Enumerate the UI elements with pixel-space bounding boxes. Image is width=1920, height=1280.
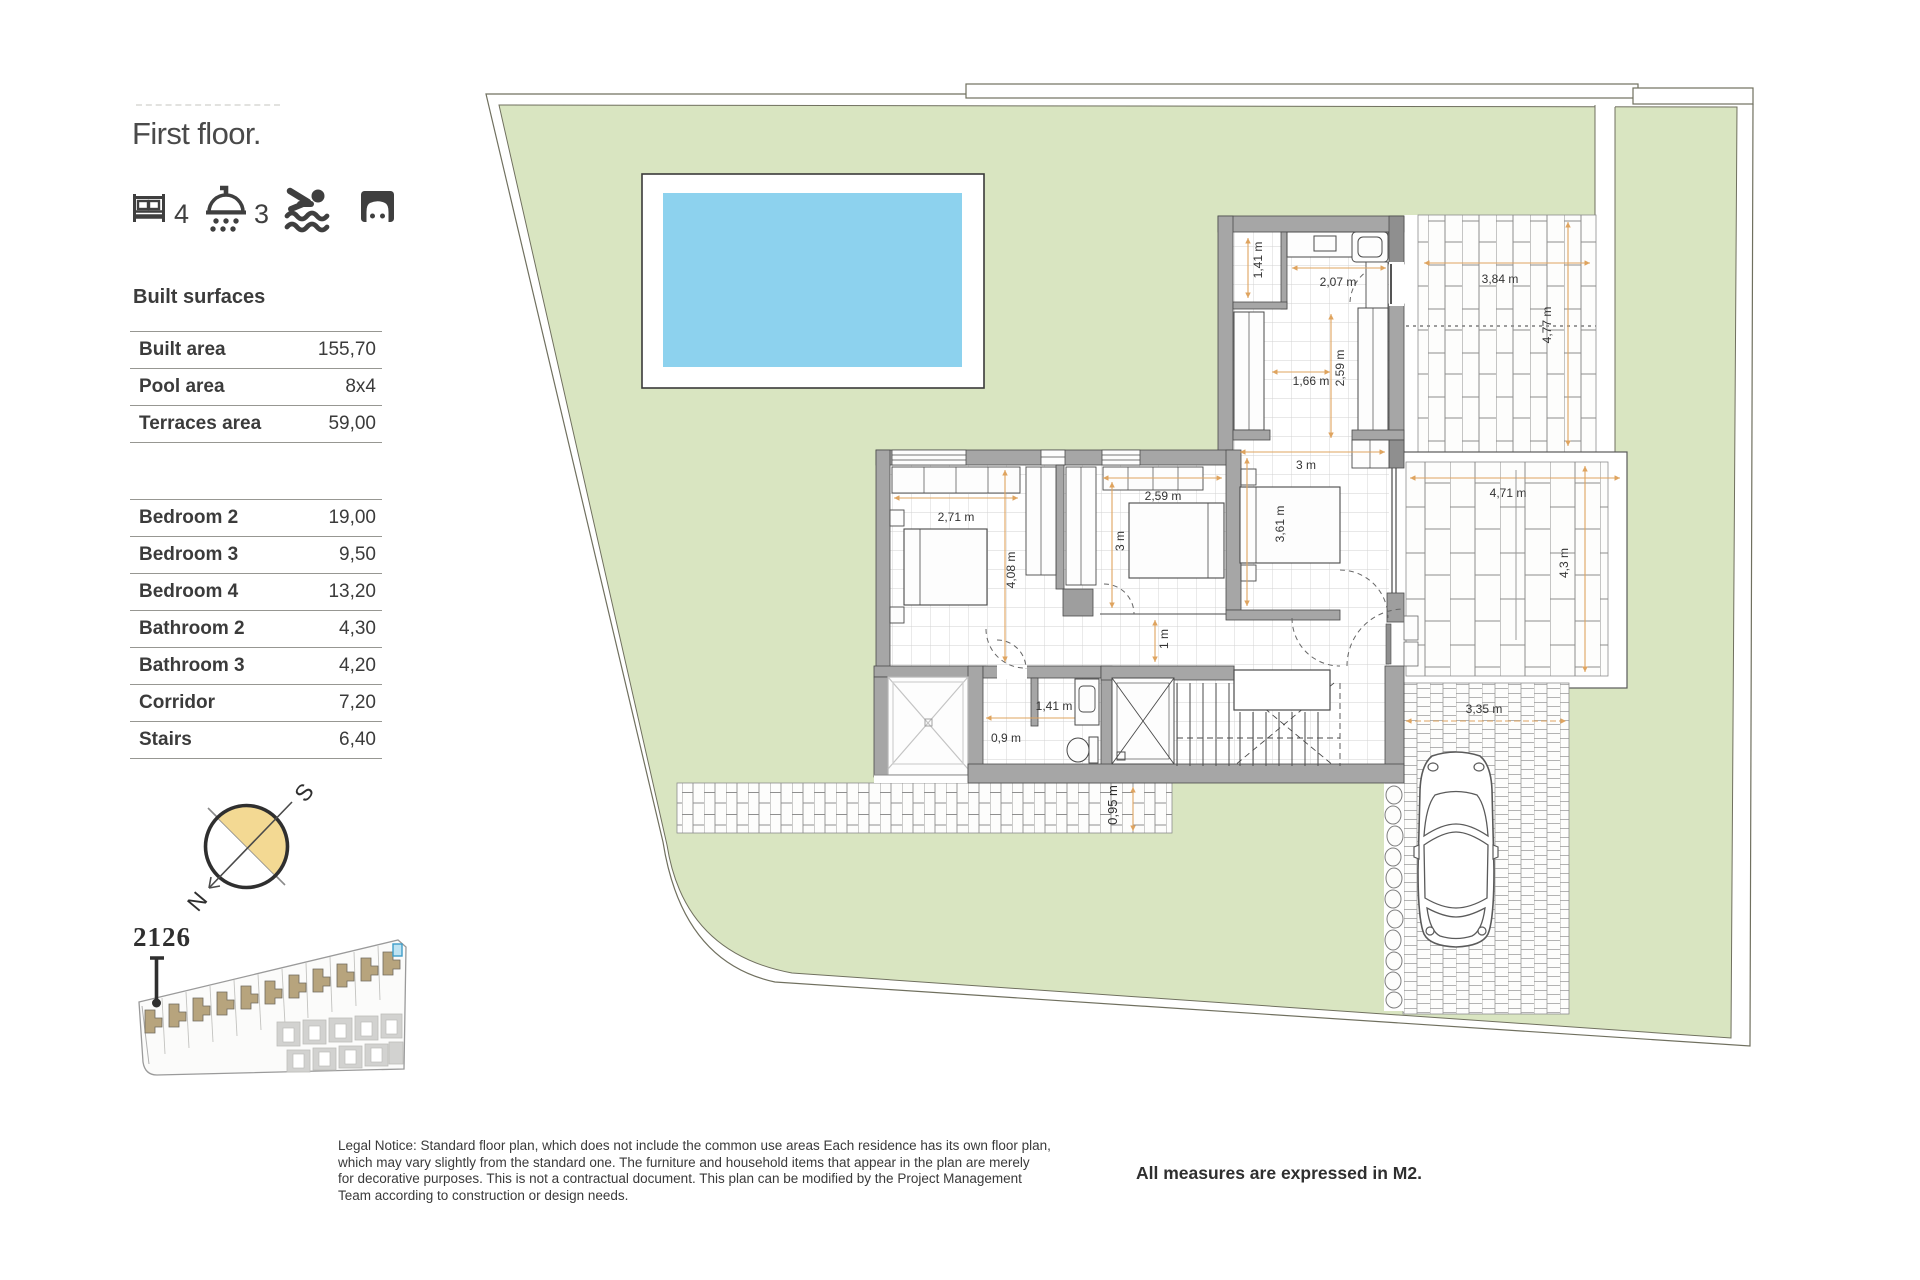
svg-text:2,59 m: 2,59 m — [1333, 350, 1347, 387]
svg-text:4,71 m: 4,71 m — [1490, 486, 1527, 500]
svg-text:3,35 m: 3,35 m — [1466, 702, 1503, 716]
svg-text:2,59 m: 2,59 m — [1145, 489, 1182, 503]
svg-text:3,61 m: 3,61 m — [1273, 506, 1287, 543]
svg-text:2,71 m: 2,71 m — [938, 510, 975, 524]
svg-text:0,95 m: 0,95 m — [1105, 785, 1120, 825]
svg-text:1,66 m: 1,66 m — [1293, 374, 1330, 388]
svg-text:1,41 m: 1,41 m — [1036, 699, 1073, 713]
svg-text:3 m: 3 m — [1296, 458, 1316, 472]
svg-text:3 m: 3 m — [1113, 531, 1127, 551]
svg-text:3,84 m: 3,84 m — [1482, 272, 1519, 286]
svg-text:1 m: 1 m — [1157, 629, 1171, 649]
svg-text:4,3 m: 4,3 m — [1557, 548, 1571, 578]
svg-text:4,77 m: 4,77 m — [1540, 307, 1554, 344]
svg-text:1,41 m: 1,41 m — [1251, 242, 1265, 279]
svg-text:4,08 m: 4,08 m — [1004, 552, 1018, 589]
svg-text:0,9 m: 0,9 m — [991, 731, 1021, 745]
svg-text:2,07 m: 2,07 m — [1320, 275, 1357, 289]
